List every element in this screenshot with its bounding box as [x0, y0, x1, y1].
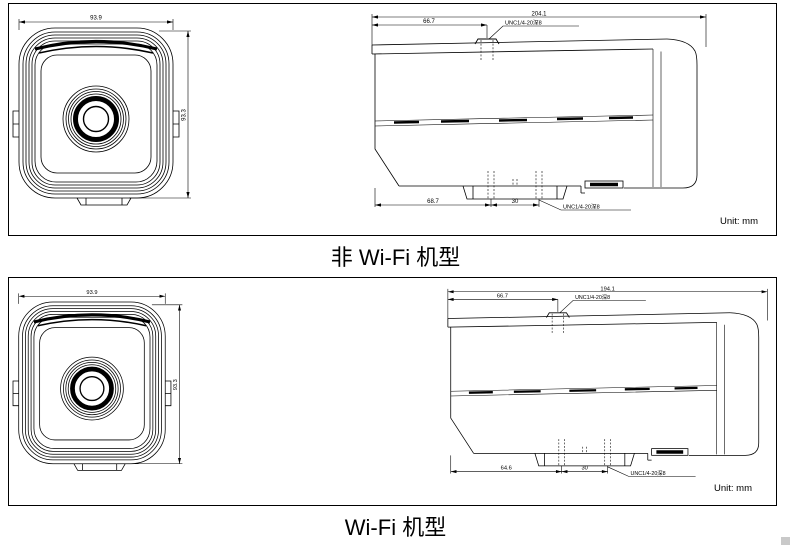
wifi-drawing-frame: 93.9 93.3 194.1 66.7 UNC1/4-20深8: [8, 277, 777, 506]
side-overall-length-dimension: 204.1: [531, 12, 547, 18]
resize-handle: [781, 537, 790, 545]
front-width-dimension: 93.9: [86, 290, 97, 296]
non-wifi-drawing-frame: 93.9 93.3 204.1: [8, 3, 777, 236]
side-overall-length-dimension: 194.1: [600, 286, 614, 292]
bottom-thread-label: UNC1/4-20深8: [631, 469, 666, 477]
front-height-dimension: 93.3: [173, 379, 179, 390]
side-base-offset-dimension: 64.6: [501, 466, 512, 472]
side-thread-offset-dimension: 66.7: [497, 294, 508, 300]
wifi-side-view-drawing: 194.1 66.7 UNC1/4-20深8 64.6 30 UNC1/4-20…: [445, 284, 775, 487]
top-thread-label: UNC1/4-20深8: [505, 19, 542, 27]
side-base-offset-dimension: 68.7: [427, 199, 439, 205]
wifi-caption: Wi-Fi 机型: [0, 510, 791, 542]
top-thread-label: UNC1/4-20深8: [575, 293, 610, 301]
front-width-dimension: 93.9: [90, 16, 102, 22]
page: { "document": { "background": "#ffffff",…: [0, 0, 791, 547]
unit-label: Unit: mm: [714, 483, 752, 494]
non-wifi-front-view-drawing: 93.9 93.3: [11, 7, 221, 213]
wifi-front-view-drawing: 93.9 93.3: [11, 282, 211, 478]
non-wifi-caption: 非 Wi-Fi 机型: [0, 240, 791, 272]
bottom-thread-label: UNC1/4-20深8: [563, 203, 600, 211]
non-wifi-side-view-drawing: 204.1 66.7 UNC1/4-20深8 68.7 30 UNC1: [369, 9, 714, 221]
front-height-dimension: 93.3: [182, 109, 188, 121]
side-thread-offset-dimension: 66.7: [423, 19, 435, 25]
side-hole-spacing-dimension: 30: [581, 466, 587, 472]
side-hole-spacing-dimension: 30: [512, 199, 519, 205]
unit-label: Unit: mm: [720, 216, 758, 227]
